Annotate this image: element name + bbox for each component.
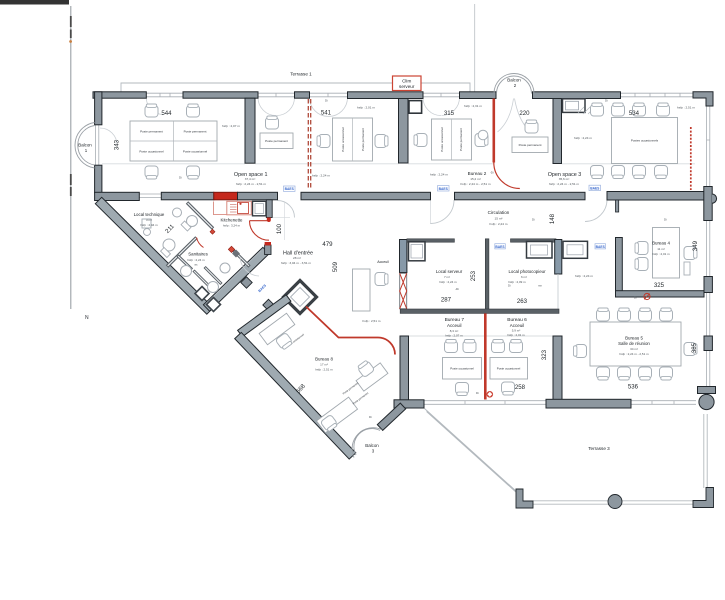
svg-text:Poste occasionnel: Poste occasionnel xyxy=(450,367,474,371)
svg-text:Circulation: Circulation xyxy=(488,210,510,215)
svg-text:11 m²: 11 m² xyxy=(657,247,664,251)
svg-text:325: 325 xyxy=(654,282,665,289)
svg-text:Kitchenette: Kitchenette xyxy=(221,218,244,223)
svg-text:hsfp : 2,31 m: hsfp : 2,31 m xyxy=(464,104,482,108)
svg-text:Poste occasionnel: Poste occasionnel xyxy=(139,150,164,154)
svg-text:hsfp : 2,24 m - 2,51 m: hsfp : 2,24 m - 2,51 m xyxy=(460,182,491,186)
svg-text:Poste permanent: Poste permanent xyxy=(459,128,463,151)
svg-text:6 m²: 6 m² xyxy=(521,275,527,279)
svg-text:Acceuil: Acceuil xyxy=(510,323,525,328)
svg-text:Bureau 8: Bureau 8 xyxy=(315,357,333,362)
svg-text:hsfp : 2,01 m: hsfp : 2,01 m xyxy=(652,252,670,256)
svg-text:hsfp : 2,24 m - 2,51 m: hsfp : 2,24 m - 2,51 m xyxy=(236,182,267,186)
svg-text:Terrasse 3: Terrasse 3 xyxy=(588,446,610,451)
svg-text:hsfp : 2,24 m: hsfp : 2,24 m xyxy=(187,258,205,262)
svg-text:35,6 m²: 35,6 m² xyxy=(559,177,570,181)
svg-text:323: 323 xyxy=(541,349,548,360)
svg-text:-Di: -Di xyxy=(455,287,459,291)
svg-text:Postes occasionnels: Postes occasionnels xyxy=(631,139,659,143)
svg-text:544: 544 xyxy=(161,110,172,117)
svg-text:BAES: BAES xyxy=(590,186,600,190)
svg-text:Poste occasionnel: Poste occasionnel xyxy=(183,150,208,154)
svg-text:hsfp : 2,24 m - 2,51 m: hsfp : 2,24 m - 2,51 m xyxy=(549,182,580,186)
svg-text:Di: Di xyxy=(532,218,535,222)
svg-text:Poste permanent: Poste permanent xyxy=(140,130,163,134)
svg-text:Poste permanent: Poste permanent xyxy=(184,130,207,134)
svg-text:hsfp : 2,07 m: hsfp : 2,07 m xyxy=(445,333,463,337)
svg-text:hsfp : 3,24 m: hsfp : 3,24 m xyxy=(223,224,241,228)
svg-text:Bureau 5: Bureau 5 xyxy=(625,336,643,341)
svg-text:Balcon: Balcon xyxy=(78,143,92,148)
svg-text:serveur: serveur xyxy=(399,84,415,89)
svg-text:hsfp : 2,51 m: hsfp : 2,51 m xyxy=(363,319,381,323)
svg-text:349: 349 xyxy=(692,240,699,251)
svg-text:8,3 m²: 8,3 m² xyxy=(450,329,459,333)
svg-text:Local photocopieur: Local photocopieur xyxy=(508,269,546,274)
svg-text:hsfp : 2,51 m: hsfp : 2,51 m xyxy=(677,106,695,110)
svg-text:Balcon: Balcon xyxy=(365,443,379,448)
svg-text:Local serveur: Local serveur xyxy=(436,269,463,274)
svg-text:hsfp : 3,04 m - 3,51 m: hsfp : 3,04 m - 3,51 m xyxy=(281,261,312,265)
svg-text:Poste permanent: Poste permanent xyxy=(361,128,365,151)
svg-text:28 m²: 28 m² xyxy=(293,256,301,260)
svg-text:Di: Di xyxy=(369,415,372,419)
svg-text:hsfp : 2,24 m: hsfp : 2,24 m xyxy=(312,174,330,178)
svg-text:hsfp : 2,51 m: hsfp : 2,51 m xyxy=(315,367,333,371)
svg-text:34 m²: 34 m² xyxy=(630,347,638,351)
svg-text:7 m²: 7 m² xyxy=(444,275,450,279)
svg-text:Local technique: Local technique xyxy=(134,212,165,217)
svg-text:BAES: BAES xyxy=(495,245,505,249)
svg-text:148: 148 xyxy=(549,213,556,224)
svg-text:15 m²: 15 m² xyxy=(495,217,503,221)
svg-text:hsfp : 2,24 m: hsfp : 2,24 m xyxy=(430,173,448,177)
svg-text:Poste permanent: Poste permanent xyxy=(519,143,542,147)
svg-text:hsfp : 2,24 m: hsfp : 2,24 m xyxy=(575,274,593,278)
svg-text:Poste occasionnel: Poste occasionnel xyxy=(497,367,521,371)
svg-text:Clim: Clim xyxy=(402,78,411,83)
svg-text:258: 258 xyxy=(515,384,526,391)
svg-text:Terrasse 1: Terrasse 1 xyxy=(290,72,312,77)
svg-text:Bureau 2: Bureau 2 xyxy=(468,171,487,176)
svg-text:mn: mn xyxy=(538,284,542,288)
svg-text:37,4 m²: 37,4 m² xyxy=(245,177,256,181)
svg-text:Balcon: Balcon xyxy=(507,78,521,83)
svg-text:479: 479 xyxy=(322,241,333,248)
svg-text:541: 541 xyxy=(321,110,332,117)
svg-text:509: 509 xyxy=(332,261,339,272)
svg-text:Acceuil: Acceuil xyxy=(447,323,462,328)
svg-text:hsfp : 2,24 m: hsfp : 2,24 m xyxy=(439,280,457,284)
svg-text:Di: Di xyxy=(476,391,479,395)
svg-text:Poste permanent: Poste permanent xyxy=(265,139,288,143)
svg-text:536: 536 xyxy=(628,384,639,391)
svg-text:hsfp : 2,01 m: hsfp : 2,01 m xyxy=(357,106,375,110)
svg-text:Poste occasionnel: Poste occasionnel xyxy=(341,127,345,152)
svg-text:Acceuil: Acceuil xyxy=(377,260,389,264)
svg-text:253: 253 xyxy=(470,270,477,281)
svg-text:Sanitaires: Sanitaires xyxy=(188,252,208,257)
svg-text:Bureau 4: Bureau 4 xyxy=(652,241,670,246)
svg-text:17 m²: 17 m² xyxy=(320,363,328,367)
svg-text:Di: Di xyxy=(634,296,637,300)
svg-text:343: 343 xyxy=(114,139,121,150)
svg-text:Poste occasionnel: Poste occasionnel xyxy=(440,127,444,152)
svg-text:N: N xyxy=(85,315,89,321)
svg-text:15,2 m²: 15,2 m² xyxy=(470,177,481,181)
svg-text:hsfp : 2,94 m: hsfp : 2,94 m xyxy=(140,223,158,227)
svg-text:hsfp : 2,24 m - 2,51 m: hsfp : 2,24 m - 2,51 m xyxy=(619,352,649,356)
svg-text:534: 534 xyxy=(629,110,640,117)
svg-text:100: 100 xyxy=(276,223,283,234)
svg-text:Di: Di xyxy=(179,176,182,180)
svg-text:hsfp : 2,24 m: hsfp : 2,24 m xyxy=(574,136,592,140)
svg-text:287: 287 xyxy=(441,297,452,304)
svg-text:hsfp : 2,01 m: hsfp : 2,01 m xyxy=(507,333,525,337)
svg-text:Salle de réunion: Salle de réunion xyxy=(618,341,650,346)
svg-text:Di: Di xyxy=(664,218,667,222)
svg-text:5,9 m²: 5,9 m² xyxy=(512,328,521,332)
svg-text:BAES: BAES xyxy=(439,187,449,191)
svg-text:BAES: BAES xyxy=(285,187,295,191)
svg-text:BAES: BAES xyxy=(596,245,606,249)
svg-text:385: 385 xyxy=(691,342,698,353)
svg-text:220: 220 xyxy=(519,110,530,117)
svg-text:Di: Di xyxy=(508,284,511,288)
svg-text:Di: Di xyxy=(325,99,328,103)
svg-text:-Di: -Di xyxy=(490,171,494,175)
svg-text:263: 263 xyxy=(517,298,528,305)
svg-text:Di: Di xyxy=(605,99,608,103)
svg-text:hsfp : 2,07 m: hsfp : 2,07 m xyxy=(222,124,240,128)
svg-text:hsfp : 2,24 m: hsfp : 2,24 m xyxy=(490,222,508,226)
svg-text:315: 315 xyxy=(444,110,455,117)
svg-text:hsfp : 2,09 m: hsfp : 2,09 m xyxy=(508,280,526,284)
svg-text:3 m²: 3 m² xyxy=(146,218,152,222)
